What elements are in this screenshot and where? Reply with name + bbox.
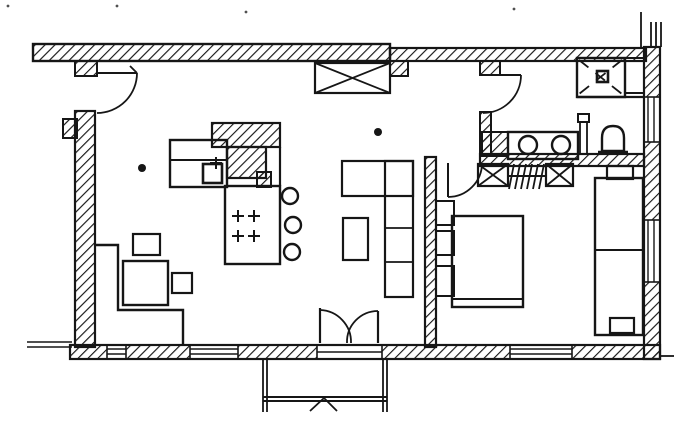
balcony-doors [320,308,378,343]
utility-pipes [641,12,661,47]
radiator-left [478,164,508,186]
ceiling-dot-living [138,164,146,172]
right-wall [644,47,660,359]
sofa [342,161,413,297]
entry-door [97,66,137,113]
bar-stools [282,188,301,260]
pier-top-middle [390,61,408,76]
ceiling-dot-hall [374,128,382,136]
pier-bath-door [480,61,500,75]
bottom-wall [70,345,660,359]
interior-wall [425,157,436,347]
shower [577,58,644,97]
duct-pipe [578,114,589,154]
floor-plan-page [0,0,700,436]
bed [452,216,523,307]
toilet [598,126,628,152]
radiator-right [546,164,573,186]
site-line [27,342,72,347]
balcony [263,359,387,412]
towel-rail [508,164,546,189]
coffee-table [343,218,368,260]
pier-entry [75,61,97,76]
dining-table [123,261,168,305]
floor-plan-svg [0,0,700,436]
bedroom-door [448,163,482,197]
scan-specks [7,5,516,14]
dining-chair-1 [133,234,160,255]
top-wall-left [33,44,390,61]
window-radiator-top [315,63,390,93]
left-wall [63,111,95,347]
dining-chair-2 [172,273,192,293]
bathroom-door [483,75,521,113]
wardrobe [595,166,643,335]
